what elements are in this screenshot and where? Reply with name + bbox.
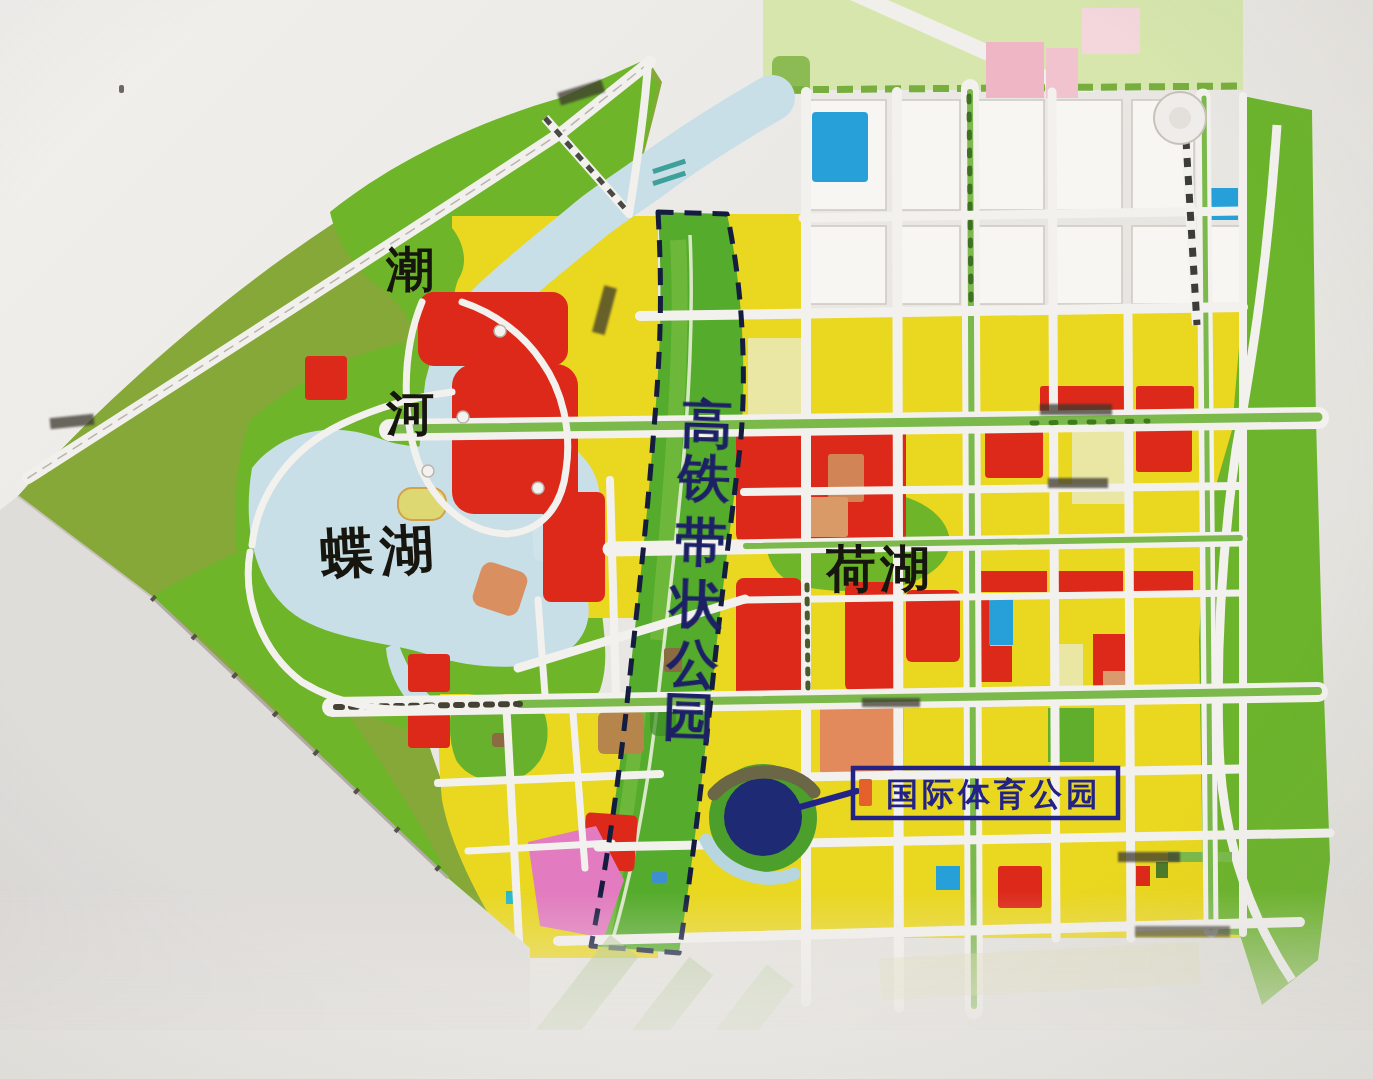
planning-map: 国际体育公园 潮 河 蝶湖 荷湖 高 铁 带 状 公 园 [0,0,1373,1079]
photo-glare [0,0,1373,1079]
vignette [0,0,1373,1079]
planning-map-photo: 国际体育公园 潮 河 蝶湖 荷湖 高 铁 带 状 公 园 [0,0,1373,1079]
